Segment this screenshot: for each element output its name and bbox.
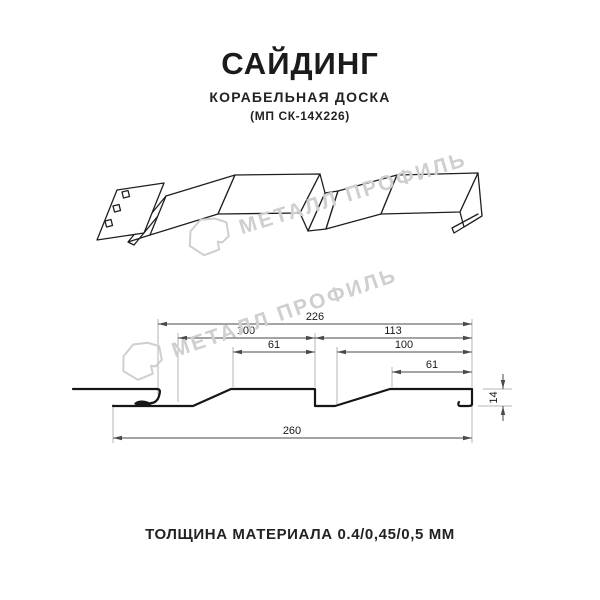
profile-nail-line bbox=[73, 389, 160, 403]
page-subtitle: КОРАБЕЛЬНАЯ ДОСКА bbox=[0, 89, 600, 105]
profile-section-line bbox=[113, 389, 472, 406]
dim-label-113: 113 bbox=[384, 325, 402, 337]
product-drawing-page: САЙДИНГ КОРАБЕЛЬНАЯ ДОСКА (МП СК-14Х226) bbox=[0, 0, 600, 600]
dim-label-100-right: 100 bbox=[395, 339, 413, 351]
dim-label-100-left: 100 bbox=[237, 325, 255, 337]
thickness-note: ТОЛЩИНА МАТЕРИАЛА 0.4/0,45/0,5 ММ bbox=[0, 526, 600, 543]
cross-section-drawing: 226 100 113 61 100 61 260 14 bbox=[40, 295, 580, 465]
dim-label-260: 260 bbox=[283, 425, 301, 437]
dim-label-61-left: 61 bbox=[268, 339, 280, 351]
profile-3d-drawing bbox=[80, 148, 520, 280]
dimension-arrows bbox=[113, 322, 505, 440]
dim-label-226: 226 bbox=[306, 311, 324, 323]
dim-label-14: 14 bbox=[488, 391, 500, 403]
dim-label-61-right: 61 bbox=[426, 359, 438, 371]
page-title: САЙДИНГ bbox=[0, 46, 600, 82]
header: САЙДИНГ КОРАБЕЛЬНАЯ ДОСКА (МП СК-14Х226) bbox=[0, 0, 600, 123]
model-code: (МП СК-14Х226) bbox=[0, 109, 600, 123]
